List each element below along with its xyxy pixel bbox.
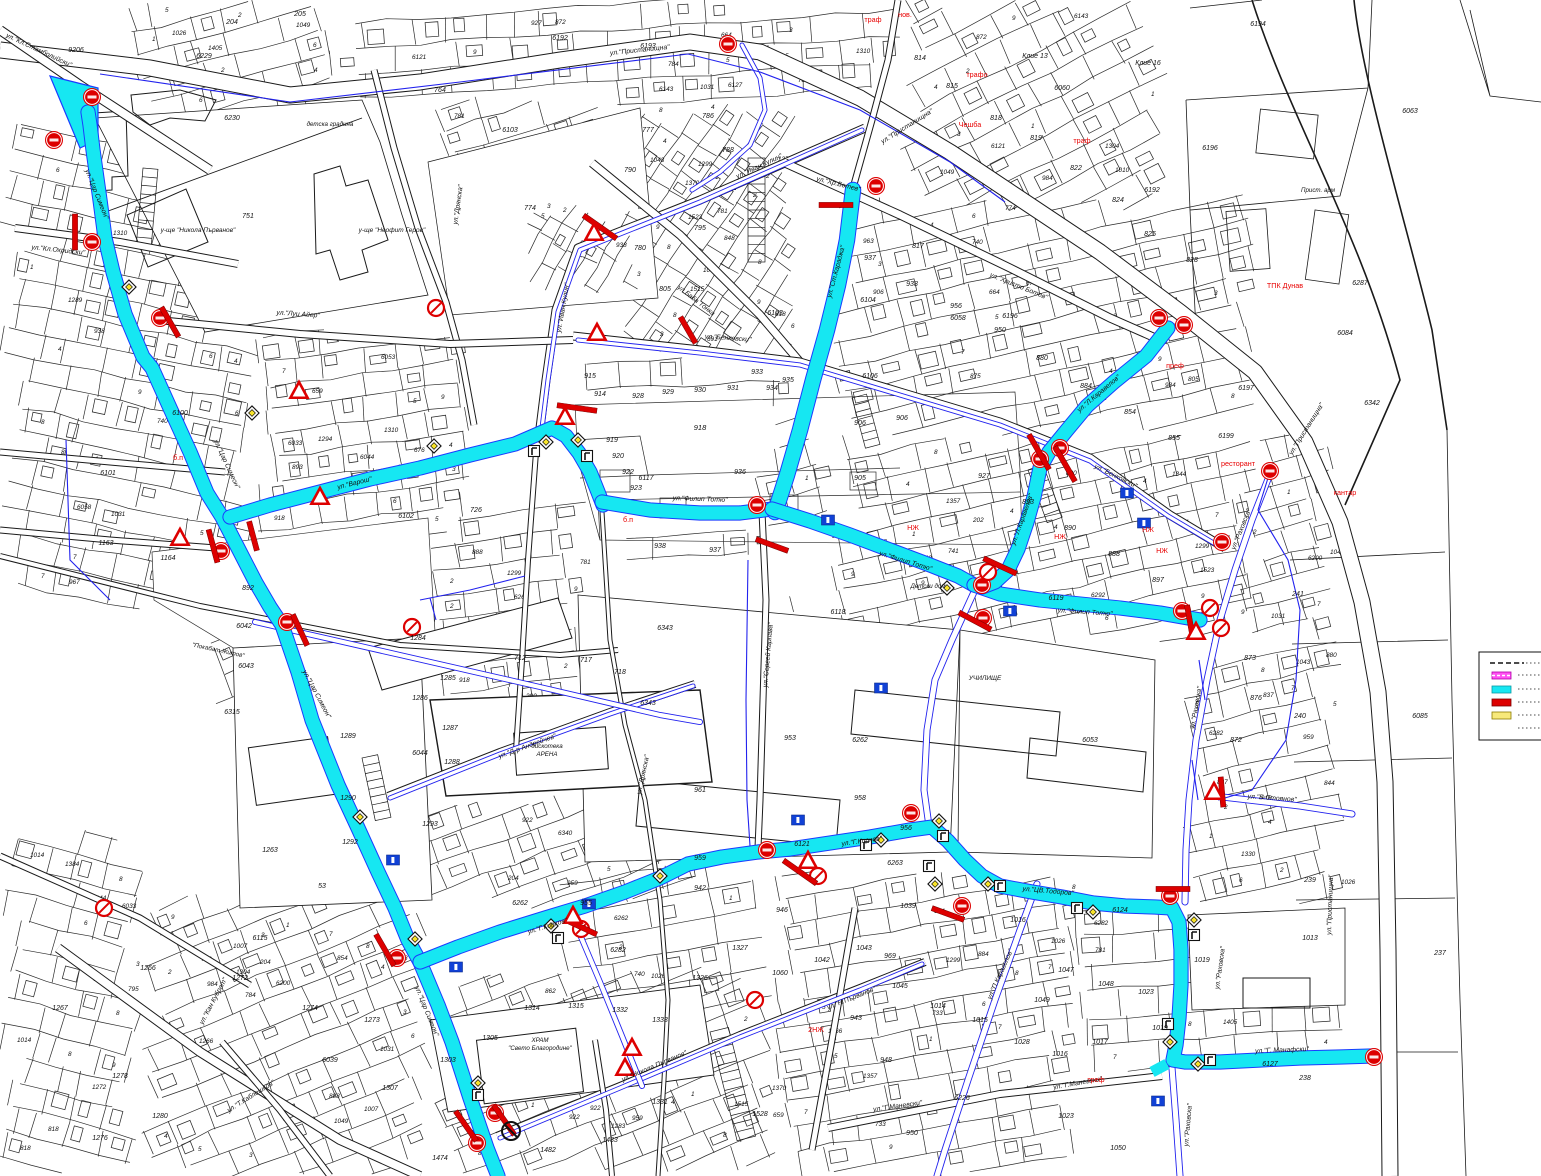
svg-text:1299: 1299	[1195, 543, 1210, 550]
svg-text:4: 4	[1268, 819, 1272, 826]
svg-text:1010: 1010	[1115, 167, 1130, 174]
svg-text:872: 872	[1230, 737, 1242, 744]
svg-text:659: 659	[773, 1112, 784, 1119]
svg-text:781: 781	[580, 559, 591, 566]
svg-text:1299: 1299	[507, 570, 522, 577]
svg-text:717: 717	[580, 657, 593, 664]
svg-text:1528: 1528	[752, 1111, 768, 1118]
svg-text:8: 8	[116, 1010, 120, 1017]
svg-text:7: 7	[998, 1024, 1002, 1031]
svg-text:884: 884	[978, 951, 989, 958]
svg-text:946: 946	[776, 907, 788, 914]
svg-text:1014: 1014	[17, 1037, 32, 1044]
svg-text:детска градина: детска градина	[307, 121, 354, 128]
svg-text:774: 774	[1005, 205, 1016, 212]
svg-text:6127: 6127	[1262, 1061, 1279, 1068]
svg-text:5: 5	[995, 314, 999, 321]
svg-text:6053: 6053	[1082, 737, 1098, 744]
svg-text:1288: 1288	[444, 759, 460, 766]
svg-text:1280: 1280	[152, 1113, 168, 1120]
svg-text:б.п: б.п	[173, 453, 183, 462]
svg-text:ТПК Дунав: ТПК Дунав	[1267, 281, 1303, 290]
svg-text:7: 7	[961, 349, 965, 356]
svg-text:1047: 1047	[1058, 967, 1075, 974]
svg-text:9: 9	[473, 49, 477, 56]
svg-text:5: 5	[834, 1053, 838, 1060]
svg-text:1293: 1293	[422, 821, 438, 828]
svg-text:9: 9	[171, 914, 175, 921]
svg-text:888: 888	[472, 549, 483, 556]
svg-text:8: 8	[723, 1132, 727, 1139]
svg-text:5: 5	[726, 57, 730, 64]
svg-text:819: 819	[1030, 135, 1042, 142]
svg-text:7: 7	[329, 931, 333, 938]
svg-text:1: 1	[912, 531, 916, 538]
svg-text:6197: 6197	[1238, 385, 1255, 392]
svg-text:790: 790	[624, 167, 636, 174]
svg-text:1013: 1013	[1302, 935, 1318, 942]
svg-text:1: 1	[691, 1091, 695, 1098]
svg-text:9: 9	[1158, 356, 1162, 363]
svg-text:915: 915	[584, 373, 596, 380]
svg-text:873: 873	[1244, 655, 1256, 662]
svg-text:659: 659	[312, 388, 323, 395]
svg-text:4: 4	[1010, 508, 1014, 515]
svg-text:961: 961	[694, 787, 706, 794]
svg-text:6262: 6262	[512, 900, 528, 907]
svg-text:2: 2	[449, 603, 454, 610]
svg-text:1284: 1284	[410, 635, 426, 642]
svg-text:781: 781	[454, 113, 465, 120]
svg-text:922: 922	[569, 1114, 580, 1121]
svg-text:1267: 1267	[52, 1005, 69, 1012]
svg-text:3: 3	[637, 271, 641, 278]
svg-text:6230: 6230	[224, 115, 240, 122]
svg-text:893: 893	[292, 464, 303, 471]
svg-text:239: 239	[1303, 877, 1316, 884]
svg-text:3: 3	[403, 1009, 407, 1016]
svg-text:922: 922	[622, 469, 634, 476]
svg-text:6143: 6143	[659, 86, 674, 93]
svg-text:934: 934	[766, 385, 778, 392]
svg-text:1: 1	[1031, 123, 1035, 130]
svg-text:9: 9	[112, 1062, 116, 1069]
svg-text:6104: 6104	[860, 297, 876, 304]
svg-text:788: 788	[722, 147, 734, 154]
svg-text:трафо: трафо	[966, 70, 987, 79]
svg-text:1327: 1327	[732, 945, 749, 952]
svg-text:треф: треф	[1087, 1075, 1104, 1084]
svg-text:8: 8	[1015, 970, 1019, 977]
svg-text:6194: 6194	[1250, 21, 1266, 28]
svg-text:6106: 6106	[862, 373, 878, 380]
svg-text:905: 905	[854, 475, 866, 482]
svg-text:6058: 6058	[77, 504, 92, 511]
svg-text:959: 959	[1303, 734, 1314, 741]
svg-text:1272: 1272	[92, 1084, 107, 1091]
svg-text:9: 9	[1012, 15, 1016, 22]
svg-text:9206: 9206	[68, 47, 84, 54]
svg-text:948: 948	[880, 1057, 892, 1064]
svg-text:1357: 1357	[863, 1073, 878, 1080]
svg-text:969: 969	[884, 953, 896, 960]
svg-text:5: 5	[1333, 701, 1337, 708]
svg-text:880: 880	[1326, 652, 1337, 659]
svg-text:1289: 1289	[68, 297, 83, 304]
svg-text:1049: 1049	[940, 169, 955, 176]
svg-text:7: 7	[1317, 601, 1321, 608]
svg-text:893: 893	[1022, 499, 1034, 506]
svg-text:6119: 6119	[1048, 595, 1063, 602]
svg-text:935: 935	[782, 377, 794, 384]
svg-text:1310: 1310	[113, 230, 128, 237]
svg-text:920: 920	[612, 453, 624, 460]
svg-text:1285: 1285	[440, 675, 456, 682]
svg-text:1: 1	[286, 922, 290, 929]
svg-text:9: 9	[851, 571, 855, 578]
svg-text:НЖ: НЖ	[1142, 525, 1154, 534]
svg-text:956: 956	[950, 303, 962, 310]
svg-text:815: 815	[946, 83, 958, 90]
svg-text:1331: 1331	[652, 1099, 668, 1106]
svg-text:1164: 1164	[160, 555, 175, 562]
svg-text:1: 1	[1287, 489, 1291, 496]
svg-text:9: 9	[574, 586, 578, 593]
svg-text:1048: 1048	[1098, 981, 1114, 988]
svg-text:6124: 6124	[1112, 907, 1128, 914]
svg-text:726: 726	[470, 507, 482, 514]
svg-text:4: 4	[234, 358, 238, 365]
svg-text:1289: 1289	[340, 733, 356, 740]
svg-text:5: 5	[607, 866, 611, 873]
svg-text:5: 5	[541, 213, 545, 220]
svg-text:2: 2	[562, 207, 567, 214]
svg-text:888: 888	[1108, 551, 1120, 558]
svg-text:5: 5	[165, 7, 169, 14]
svg-text:2: 2	[752, 192, 757, 199]
svg-text:3: 3	[789, 27, 793, 34]
svg-text:4: 4	[164, 1133, 168, 1140]
svg-text:2: 2	[237, 12, 242, 19]
svg-text:937: 937	[864, 255, 877, 262]
svg-text:880: 880	[1036, 355, 1048, 362]
svg-text:6343: 6343	[657, 625, 673, 632]
svg-text:АРЕНА: АРЕНА	[536, 751, 558, 758]
svg-text:2: 2	[167, 969, 172, 976]
svg-text:824: 824	[1112, 197, 1124, 204]
svg-text:1043: 1043	[1296, 659, 1311, 666]
svg-text:1023: 1023	[1058, 1113, 1074, 1120]
svg-text:1274: 1274	[302, 1005, 318, 1012]
svg-text:6: 6	[791, 323, 795, 330]
svg-text:1474: 1474	[432, 1155, 448, 1162]
svg-text:1357: 1357	[946, 498, 961, 505]
svg-text:1: 1	[929, 1036, 933, 1043]
svg-text:4: 4	[449, 442, 453, 449]
svg-text:953: 953	[784, 735, 796, 742]
svg-text:8: 8	[659, 107, 663, 114]
svg-text:6193: 6193	[640, 43, 656, 50]
svg-text:676: 676	[414, 447, 425, 454]
svg-text:6343: 6343	[640, 700, 656, 707]
svg-text:НЖ: НЖ	[1054, 532, 1066, 541]
svg-text:6: 6	[982, 1001, 986, 1008]
svg-text:897: 897	[1152, 577, 1165, 584]
svg-text:937: 937	[709, 547, 722, 554]
svg-text:6: 6	[313, 42, 317, 49]
svg-text:1287: 1287	[442, 725, 459, 732]
svg-text:6: 6	[84, 920, 88, 927]
svg-text:854: 854	[1124, 409, 1136, 416]
svg-text:6: 6	[209, 353, 213, 360]
svg-text:НЖ: НЖ	[907, 523, 919, 532]
svg-text:Детски дом: Детски дом	[909, 583, 946, 590]
svg-text:3: 3	[878, 261, 882, 268]
svg-text:1310: 1310	[856, 48, 871, 55]
svg-text:1483: 1483	[602, 1137, 618, 1144]
svg-text:6263: 6263	[887, 860, 903, 867]
svg-text:3: 3	[547, 203, 551, 210]
svg-text:4: 4	[381, 964, 385, 971]
svg-text:664: 664	[989, 289, 1000, 296]
svg-text:8: 8	[68, 1051, 72, 1058]
svg-text:6340: 6340	[558, 830, 573, 837]
svg-text:805: 805	[659, 286, 671, 293]
svg-text:855: 855	[1168, 435, 1180, 442]
svg-text:876: 876	[1250, 695, 1262, 702]
svg-text:2: 2	[220, 67, 225, 74]
svg-text:1163: 1163	[98, 540, 113, 547]
svg-text:1042: 1042	[814, 957, 830, 964]
svg-text:6200: 6200	[276, 980, 291, 987]
svg-text:1: 1	[1151, 91, 1155, 98]
svg-text:Прист. арм: Прист. арм	[1301, 187, 1336, 194]
svg-text:818: 818	[48, 1126, 59, 1133]
svg-text:862: 862	[545, 988, 556, 995]
svg-text:2: 2	[1279, 867, 1284, 874]
svg-text:1283: 1283	[611, 1123, 626, 1130]
svg-text:1050: 1050	[1110, 1145, 1126, 1152]
svg-text:936: 936	[734, 469, 746, 476]
svg-text:1286: 1286	[412, 695, 428, 702]
svg-text:4: 4	[1143, 478, 1147, 485]
svg-text:6315: 6315	[224, 709, 240, 716]
svg-text:805: 805	[1188, 376, 1199, 383]
svg-text:1049: 1049	[334, 1118, 349, 1125]
svg-text:1299: 1299	[946, 957, 961, 964]
svg-text:1344: 1344	[1172, 471, 1187, 478]
svg-text:1014: 1014	[930, 1003, 946, 1010]
svg-text:984: 984	[1042, 175, 1053, 182]
svg-text:6043: 6043	[238, 663, 254, 670]
svg-text:8: 8	[934, 449, 938, 456]
svg-text:нов.: нов.	[898, 10, 912, 19]
svg-text:1263: 1263	[262, 847, 278, 854]
svg-text:6226: 6226	[954, 1095, 970, 1102]
svg-text:6044: 6044	[360, 454, 375, 461]
svg-text:741: 741	[948, 548, 959, 555]
svg-text:6117: 6117	[638, 475, 654, 482]
svg-text:6: 6	[56, 167, 60, 174]
svg-text:929: 929	[662, 389, 674, 396]
svg-text:6085: 6085	[1412, 713, 1428, 720]
svg-text:781: 781	[1095, 947, 1106, 954]
svg-text:1: 1	[729, 895, 733, 902]
svg-text:818: 818	[990, 115, 1002, 122]
svg-text:1016: 1016	[1052, 1051, 1068, 1058]
svg-text:906: 906	[854, 420, 866, 427]
svg-text:6282: 6282	[1209, 730, 1224, 737]
svg-text:1303: 1303	[440, 1057, 456, 1064]
svg-text:1299: 1299	[698, 161, 713, 168]
svg-text:2: 2	[659, 331, 664, 338]
svg-text:204: 204	[507, 875, 519, 882]
svg-text:6063: 6063	[1402, 108, 1418, 115]
svg-text:1333: 1333	[652, 1017, 668, 1024]
svg-text:1515: 1515	[734, 1101, 749, 1108]
svg-text:238: 238	[1298, 1075, 1311, 1082]
svg-text:1031: 1031	[111, 511, 126, 518]
svg-text:53: 53	[318, 883, 326, 890]
svg-text:8: 8	[673, 312, 677, 319]
svg-text:950: 950	[906, 1130, 918, 1137]
svg-text:6039: 6039	[322, 1057, 338, 1064]
svg-text:3: 3	[249, 1152, 253, 1159]
svg-text:6058: 6058	[950, 315, 966, 322]
svg-text:7: 7	[1215, 512, 1219, 519]
svg-text:733: 733	[932, 1010, 943, 1017]
svg-text:8: 8	[1188, 1021, 1192, 1028]
svg-text:817: 817	[912, 243, 925, 250]
svg-text:3: 3	[957, 131, 961, 138]
svg-text:8: 8	[119, 876, 123, 883]
svg-text:718: 718	[614, 669, 626, 676]
svg-text:7: 7	[804, 1109, 808, 1116]
svg-text:892: 892	[242, 585, 254, 592]
svg-text:914: 914	[594, 391, 606, 398]
svg-text:1049: 1049	[296, 22, 311, 29]
svg-text:918: 918	[459, 677, 470, 684]
svg-text:6192: 6192	[1144, 187, 1160, 194]
svg-text:1060: 1060	[772, 970, 788, 977]
svg-text:6196: 6196	[1002, 313, 1018, 320]
svg-text:6060: 6060	[1054, 85, 1070, 92]
svg-text:НЖ: НЖ	[1156, 546, 1168, 555]
svg-text:938: 938	[94, 328, 105, 335]
svg-text:1266: 1266	[199, 1038, 214, 1045]
svg-text:884: 884	[1080, 383, 1092, 390]
svg-text:938: 938	[616, 242, 627, 249]
svg-text:1031: 1031	[1271, 613, 1286, 620]
svg-text:2: 2	[743, 1016, 748, 1023]
svg-text:7: 7	[41, 573, 45, 580]
svg-text:906: 906	[873, 289, 884, 296]
svg-text:204: 204	[259, 959, 271, 966]
svg-text:6103: 6103	[502, 127, 518, 134]
svg-text:4: 4	[1054, 524, 1058, 531]
svg-text:202: 202	[972, 517, 984, 524]
svg-text:1028: 1028	[1014, 1039, 1030, 1046]
svg-text:1045: 1045	[892, 983, 908, 990]
svg-text:818: 818	[20, 1145, 31, 1152]
svg-text:875: 875	[970, 373, 981, 380]
svg-text:943: 943	[850, 1015, 862, 1022]
svg-text:6053: 6053	[381, 354, 396, 361]
svg-text:6: 6	[1239, 877, 1243, 884]
svg-text:1290: 1290	[340, 795, 356, 802]
svg-text:4: 4	[906, 481, 910, 488]
svg-text:7: 7	[282, 368, 286, 375]
svg-text:5: 5	[200, 530, 204, 537]
svg-text:237: 237	[1433, 950, 1447, 957]
svg-text:950: 950	[994, 327, 1006, 334]
svg-text:6042: 6042	[236, 623, 252, 630]
svg-text:919: 919	[606, 437, 618, 444]
svg-text:825: 825	[1144, 231, 1156, 238]
svg-text:9: 9	[889, 1144, 893, 1151]
svg-text:8: 8	[1261, 667, 1265, 674]
svg-text:777: 777	[642, 127, 655, 134]
svg-text:6196: 6196	[1202, 145, 1218, 152]
svg-text:Чешба: Чешба	[959, 120, 982, 129]
svg-text:2НЖ: 2НЖ	[808, 1025, 824, 1034]
svg-text:у-ще "Неофит Геров": у-ще "Неофит Геров"	[358, 227, 426, 234]
svg-text:9: 9	[1201, 593, 1205, 600]
svg-text:6229: 6229	[196, 53, 212, 60]
svg-text:1370: 1370	[772, 1085, 787, 1092]
svg-text:8: 8	[758, 259, 762, 266]
svg-text:958: 958	[854, 795, 866, 802]
svg-text:1273: 1273	[364, 1017, 380, 1024]
svg-text:1026: 1026	[172, 30, 187, 37]
svg-text:кантар: кантар	[1334, 488, 1356, 497]
svg-text:822: 822	[1070, 165, 1082, 172]
svg-text:8: 8	[41, 419, 45, 426]
svg-text:956: 956	[900, 825, 912, 832]
svg-text:4: 4	[1324, 1039, 1328, 1046]
svg-text:872: 872	[555, 19, 566, 26]
svg-text:7: 7	[1048, 964, 1052, 971]
svg-text:1276: 1276	[92, 1135, 108, 1142]
svg-text:781: 781	[717, 208, 728, 215]
svg-text:"Свето Благородине": "Свето Благородине"	[508, 1045, 572, 1052]
svg-text:4: 4	[663, 138, 667, 145]
svg-text:1482: 1482	[540, 1147, 556, 1154]
svg-text:1023: 1023	[1138, 989, 1154, 996]
svg-text:у-ще "Никола Първанов": у-ще "Никола Първанов"	[160, 227, 236, 234]
svg-text:1007: 1007	[233, 943, 248, 950]
svg-text:1: 1	[1209, 833, 1213, 840]
svg-text:6118: 6118	[830, 609, 845, 616]
svg-text:888: 888	[329, 1093, 340, 1100]
svg-text:1315: 1315	[568, 1003, 584, 1010]
svg-text:4: 4	[711, 104, 715, 111]
svg-text:780: 780	[634, 245, 646, 252]
svg-text:6287: 6287	[1352, 280, 1369, 287]
svg-text:4: 4	[314, 67, 318, 74]
svg-text:1292: 1292	[342, 839, 358, 846]
svg-text:872: 872	[976, 34, 987, 41]
svg-text:6342: 6342	[1364, 400, 1380, 407]
svg-text:844: 844	[1324, 780, 1335, 787]
svg-text:918: 918	[694, 423, 707, 432]
svg-text:6: 6	[393, 498, 397, 505]
svg-text:4: 4	[58, 346, 62, 353]
svg-text:205: 205	[293, 11, 306, 18]
svg-text:ресторант: ресторант	[1221, 459, 1256, 468]
svg-text:1019: 1019	[1152, 1025, 1168, 1032]
svg-text:931: 931	[727, 385, 739, 392]
